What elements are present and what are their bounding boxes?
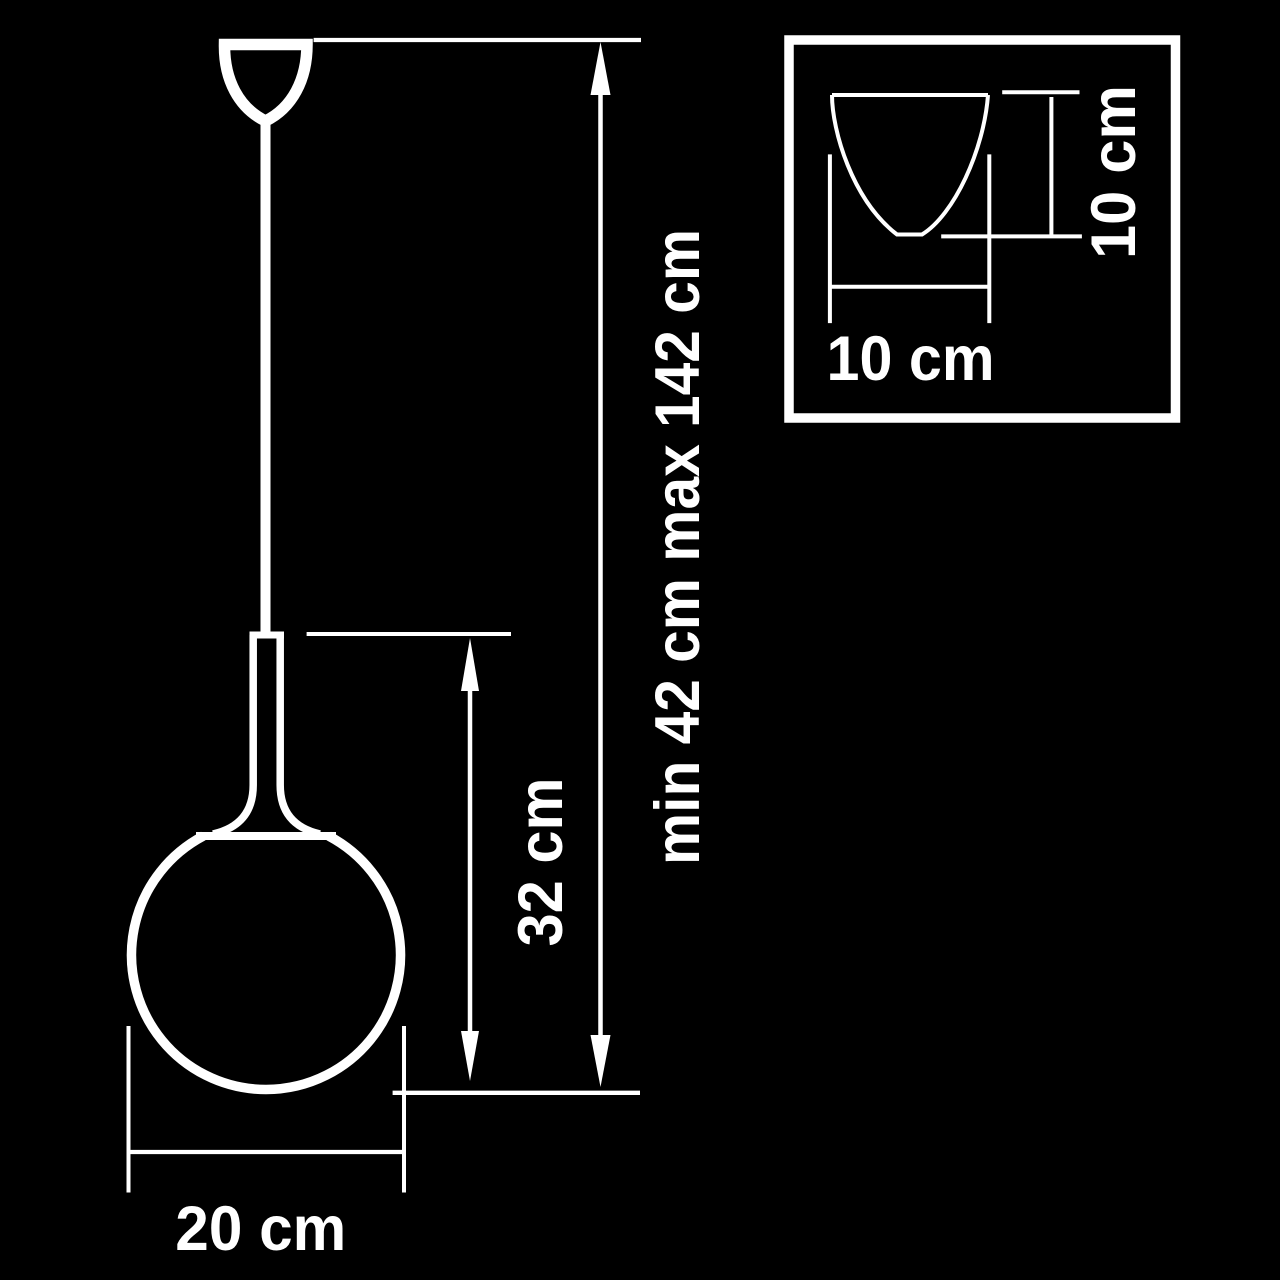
svg-text:10 cm: 10 cm [1079,85,1149,259]
svg-text:min 42 cm max 142 cm: min 42 cm max 142 cm [643,229,713,865]
svg-text:10 cm: 10 cm [827,324,995,394]
svg-text:32 cm: 32 cm [506,778,576,947]
svg-text:20 cm: 20 cm [175,1194,346,1264]
